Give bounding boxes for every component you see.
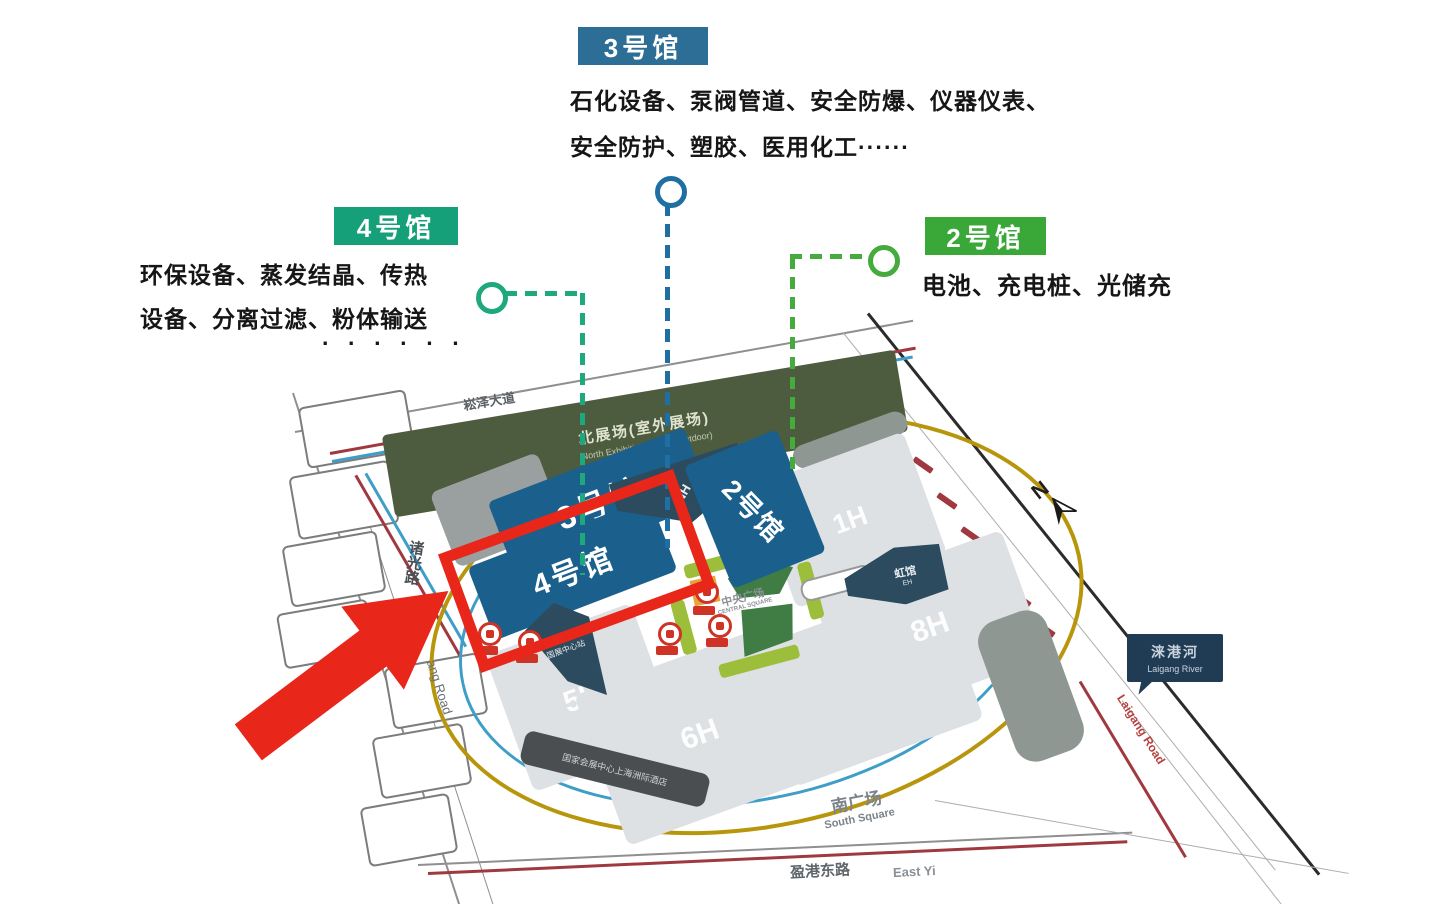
laigang-river-tooltip: 涞港河 Laigang River [1127, 634, 1223, 682]
hall3-badge: 3号馆 [578, 27, 708, 65]
metro-entrance-tag [656, 646, 678, 655]
compass: N [1030, 470, 1074, 529]
hall4-desc-line1: 环保设备、蒸发结晶、传热 [140, 256, 428, 290]
hall2-desc-line1: 电池、充电桩、光储充 [922, 266, 1172, 301]
map-hall-6-label: 6H [676, 712, 724, 757]
hall4-leader-circle-icon [476, 282, 508, 314]
hall2-leader-circle-icon [868, 245, 900, 277]
metro-line-red-bottom [428, 840, 1127, 875]
metro-entrance-icon [658, 622, 682, 646]
map-hall-eh-label-en: EH [902, 578, 913, 587]
laigang-river-label-cn: 涞港河 [1151, 642, 1199, 662]
hall4-desc-dots: · · · · · · [322, 330, 466, 357]
hall3-desc-line1: 石化设备、泵阀管道、安全防爆、仪器仪表、 [570, 82, 1050, 116]
metro-logo-icon [716, 622, 724, 630]
hall4-desc-line2: 设备、分离过滤、粉体输送 [140, 300, 428, 334]
hall2-badge: 2号馆 [925, 217, 1046, 255]
metro-entrance-tag [693, 606, 715, 615]
hall4-badge: 4号馆 [334, 207, 458, 245]
map-hall-1-label: 1H [828, 500, 871, 541]
yinggang-road-label: 盈港东路 [789, 858, 850, 882]
yinggang-road-label-en: East Yi [893, 863, 936, 880]
laigang-river-tooltip-pointer [1138, 679, 1152, 697]
map-hall-2-label: 2号馆 [715, 468, 795, 549]
road-bottom [418, 832, 1132, 866]
metro-entrance-icon [708, 614, 732, 638]
hall2-leader-line-v [790, 257, 795, 475]
map-hall-8-label: 8H [906, 605, 954, 650]
hall3-desc-line2: 安全防护、塑胶、医用化工······ [570, 128, 910, 162]
hall4-leader-line-h [505, 291, 583, 296]
metro-entrance-tag [706, 638, 728, 647]
songze-avenue-label: 崧泽大道 [462, 387, 516, 414]
hall2-leader-line-h [790, 254, 868, 259]
metro-logo-icon [666, 630, 674, 638]
laigang-river-label-en: Laigang River [1147, 664, 1203, 674]
exhibition-map-page: 3号馆 石化设备、泵阀管道、安全防爆、仪器仪表、 安全防护、塑胶、医用化工···… [0, 0, 1450, 904]
hall3-leader-circle-icon [655, 176, 687, 208]
